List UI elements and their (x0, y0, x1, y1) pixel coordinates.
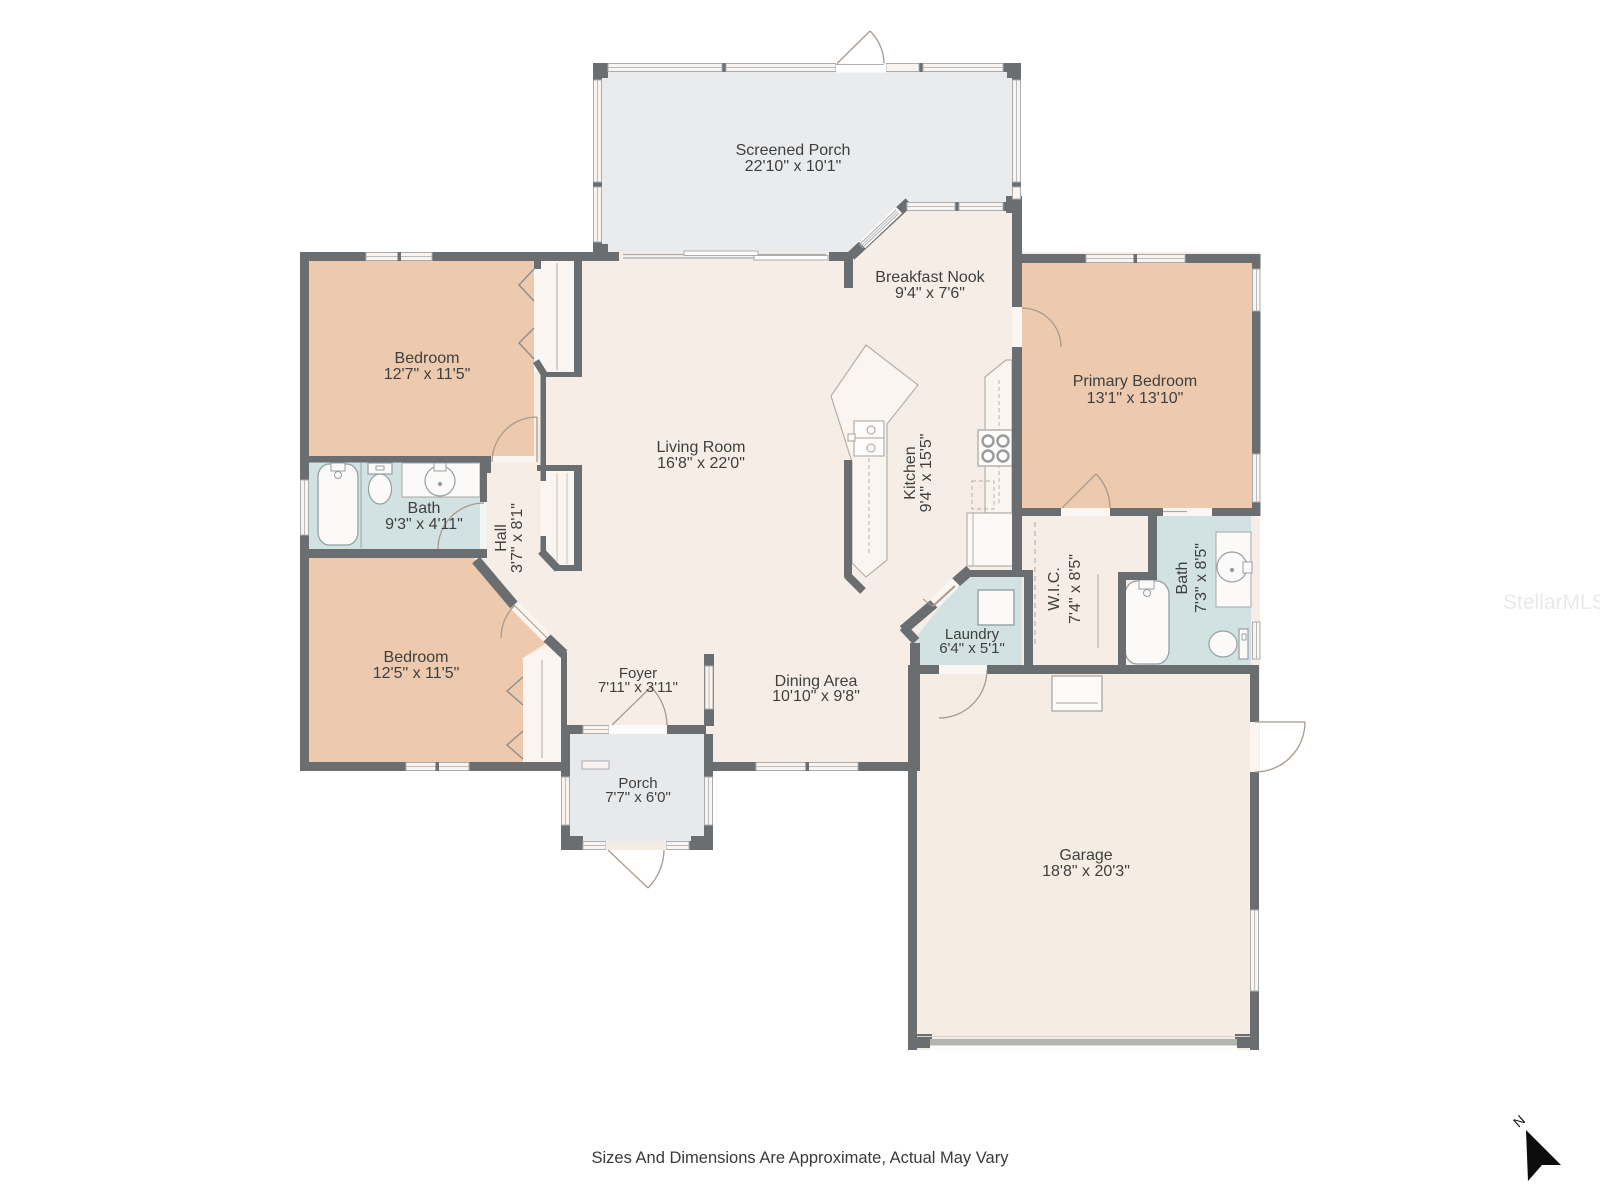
svg-text:Hall: Hall (493, 524, 510, 552)
svg-text:Kitchen: Kitchen (902, 446, 919, 499)
svg-text:Bedroom: Bedroom (384, 649, 449, 666)
svg-text:Bath: Bath (408, 500, 441, 517)
svg-text:9'4" x 15'5": 9'4" x 15'5" (918, 434, 935, 513)
svg-text:W.I.C.: W.I.C. (1046, 567, 1063, 611)
svg-text:18'8" x 20'3": 18'8" x 20'3" (1042, 863, 1130, 880)
svg-text:22'10" x 10'1": 22'10" x 10'1" (745, 158, 842, 175)
svg-text:7'11" x 3'11": 7'11" x 3'11" (598, 679, 678, 696)
svg-text:12'7" x 11'5": 12'7" x 11'5" (384, 366, 471, 383)
svg-text:3'7" x 8'1": 3'7" x 8'1" (509, 503, 526, 573)
svg-text:16'8" x 22'0": 16'8" x 22'0" (657, 455, 745, 472)
svg-text:Sizes And Dimensions Are Appro: Sizes And Dimensions Are Approximate, Ac… (592, 1149, 1010, 1167)
svg-text:9'4" x 7'6": 9'4" x 7'6" (895, 285, 965, 302)
svg-text:6'4" x 5'1": 6'4" x 5'1" (939, 640, 1005, 657)
svg-text:StellarMLS: StellarMLS (1503, 591, 1600, 614)
svg-text:13'1" x 13'10": 13'1" x 13'10" (1087, 390, 1184, 407)
svg-text:9'3" x 4'11": 9'3" x 4'11" (385, 516, 463, 533)
svg-text:7'3" x 8'5": 7'3" x 8'5" (1193, 543, 1210, 613)
svg-text:Breakfast Nook: Breakfast Nook (875, 269, 985, 286)
svg-text:Primary Bedroom: Primary Bedroom (1073, 373, 1197, 390)
svg-text:N: N (1510, 1112, 1528, 1131)
svg-text:7'4" x 8'5": 7'4" x 8'5" (1067, 554, 1084, 624)
svg-text:12'5" x 11'5": 12'5" x 11'5" (373, 665, 460, 682)
svg-text:Living Room: Living Room (657, 439, 746, 456)
svg-text:7'7" x 6'0": 7'7" x 6'0" (605, 789, 671, 806)
svg-text:Bedroom: Bedroom (395, 350, 460, 367)
svg-text:Bath: Bath (1174, 562, 1191, 595)
svg-text:Screened Porch: Screened Porch (736, 142, 851, 159)
svg-text:10'10" x 9'8": 10'10" x 9'8" (772, 688, 860, 705)
svg-text:Garage: Garage (1059, 847, 1112, 864)
